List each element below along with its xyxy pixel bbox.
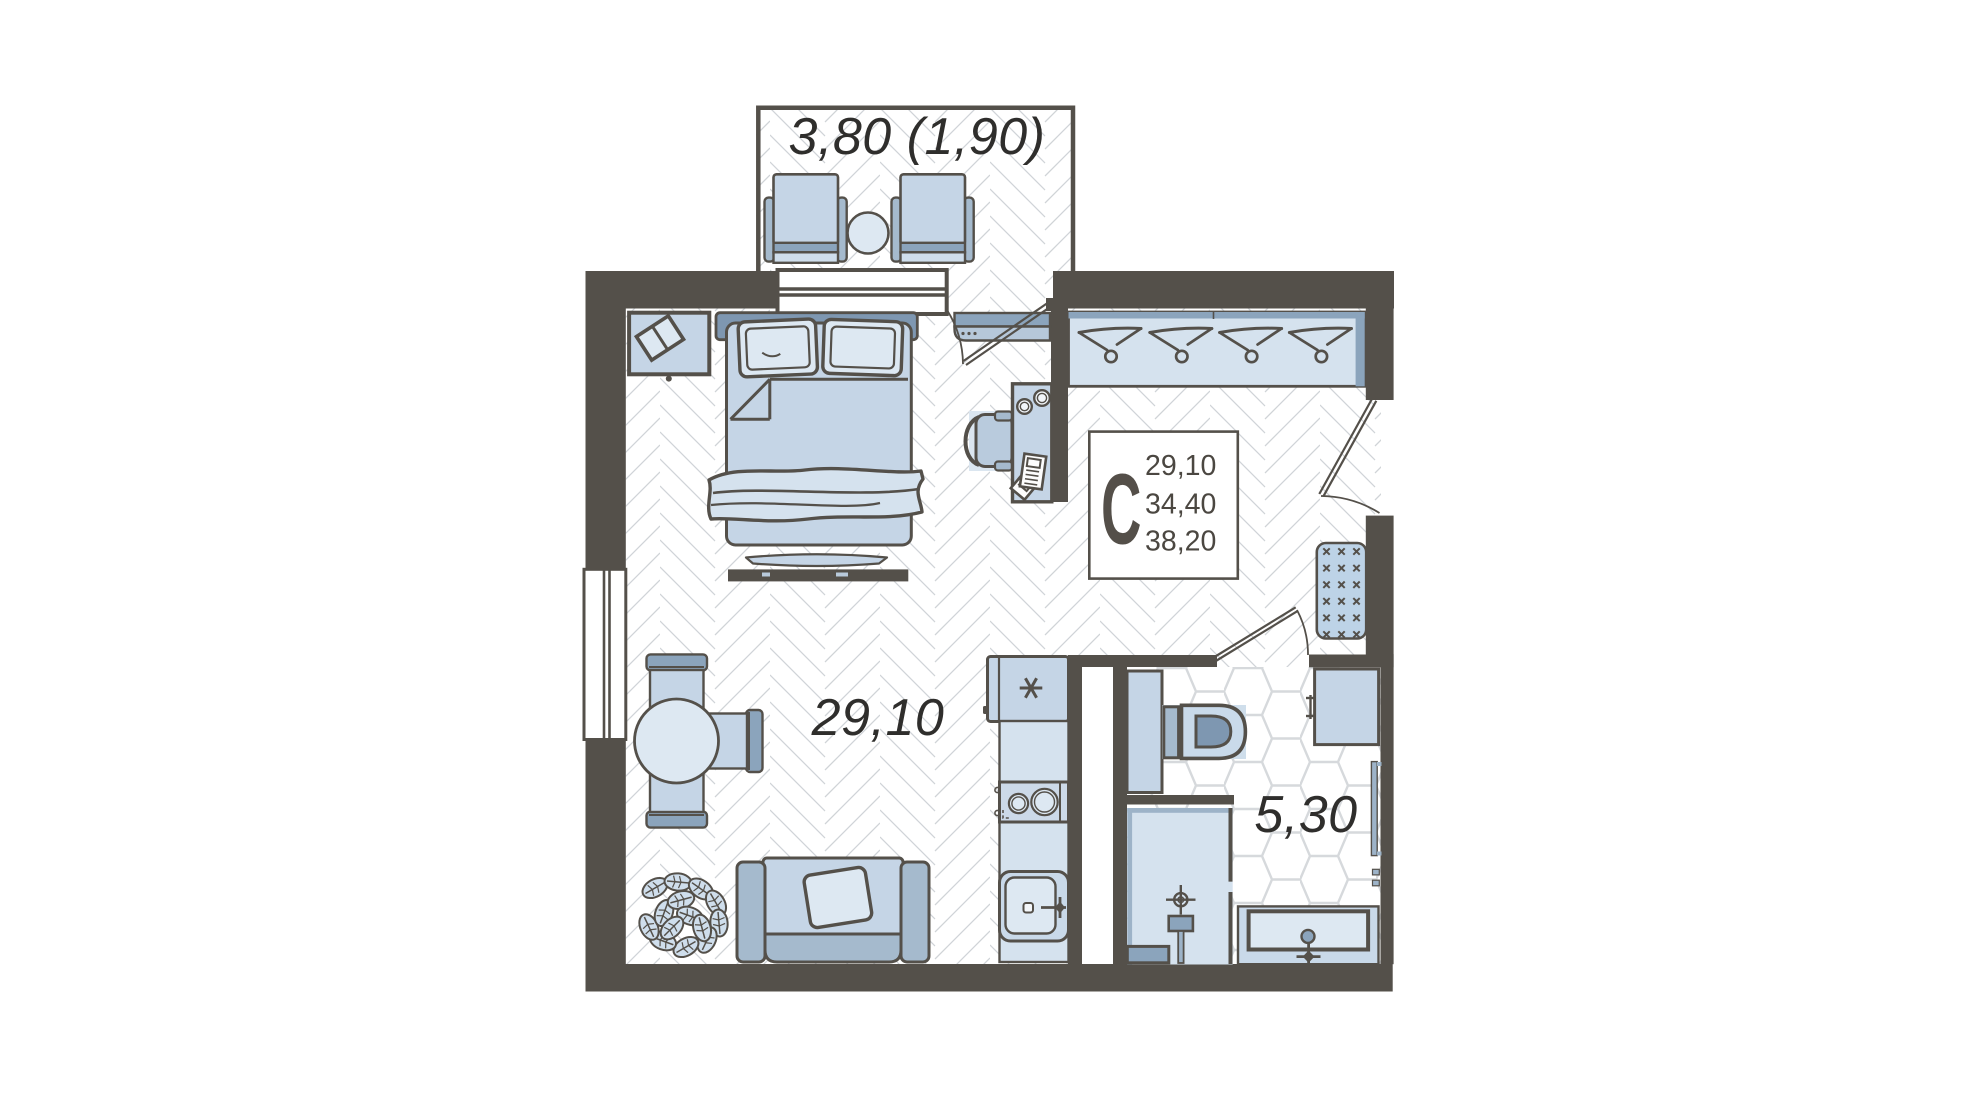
svg-text:29,10: 29,10 <box>1145 450 1216 482</box>
svg-text:C: C <box>1101 455 1141 566</box>
svg-text:34,40: 34,40 <box>1145 489 1216 521</box>
svg-text:29,10: 29,10 <box>811 689 945 747</box>
svg-text:3,80 (1,90): 3,80 (1,90) <box>789 108 1046 166</box>
svg-text:38,20: 38,20 <box>1145 526 1216 558</box>
svg-text:5,30: 5,30 <box>1254 786 1357 844</box>
